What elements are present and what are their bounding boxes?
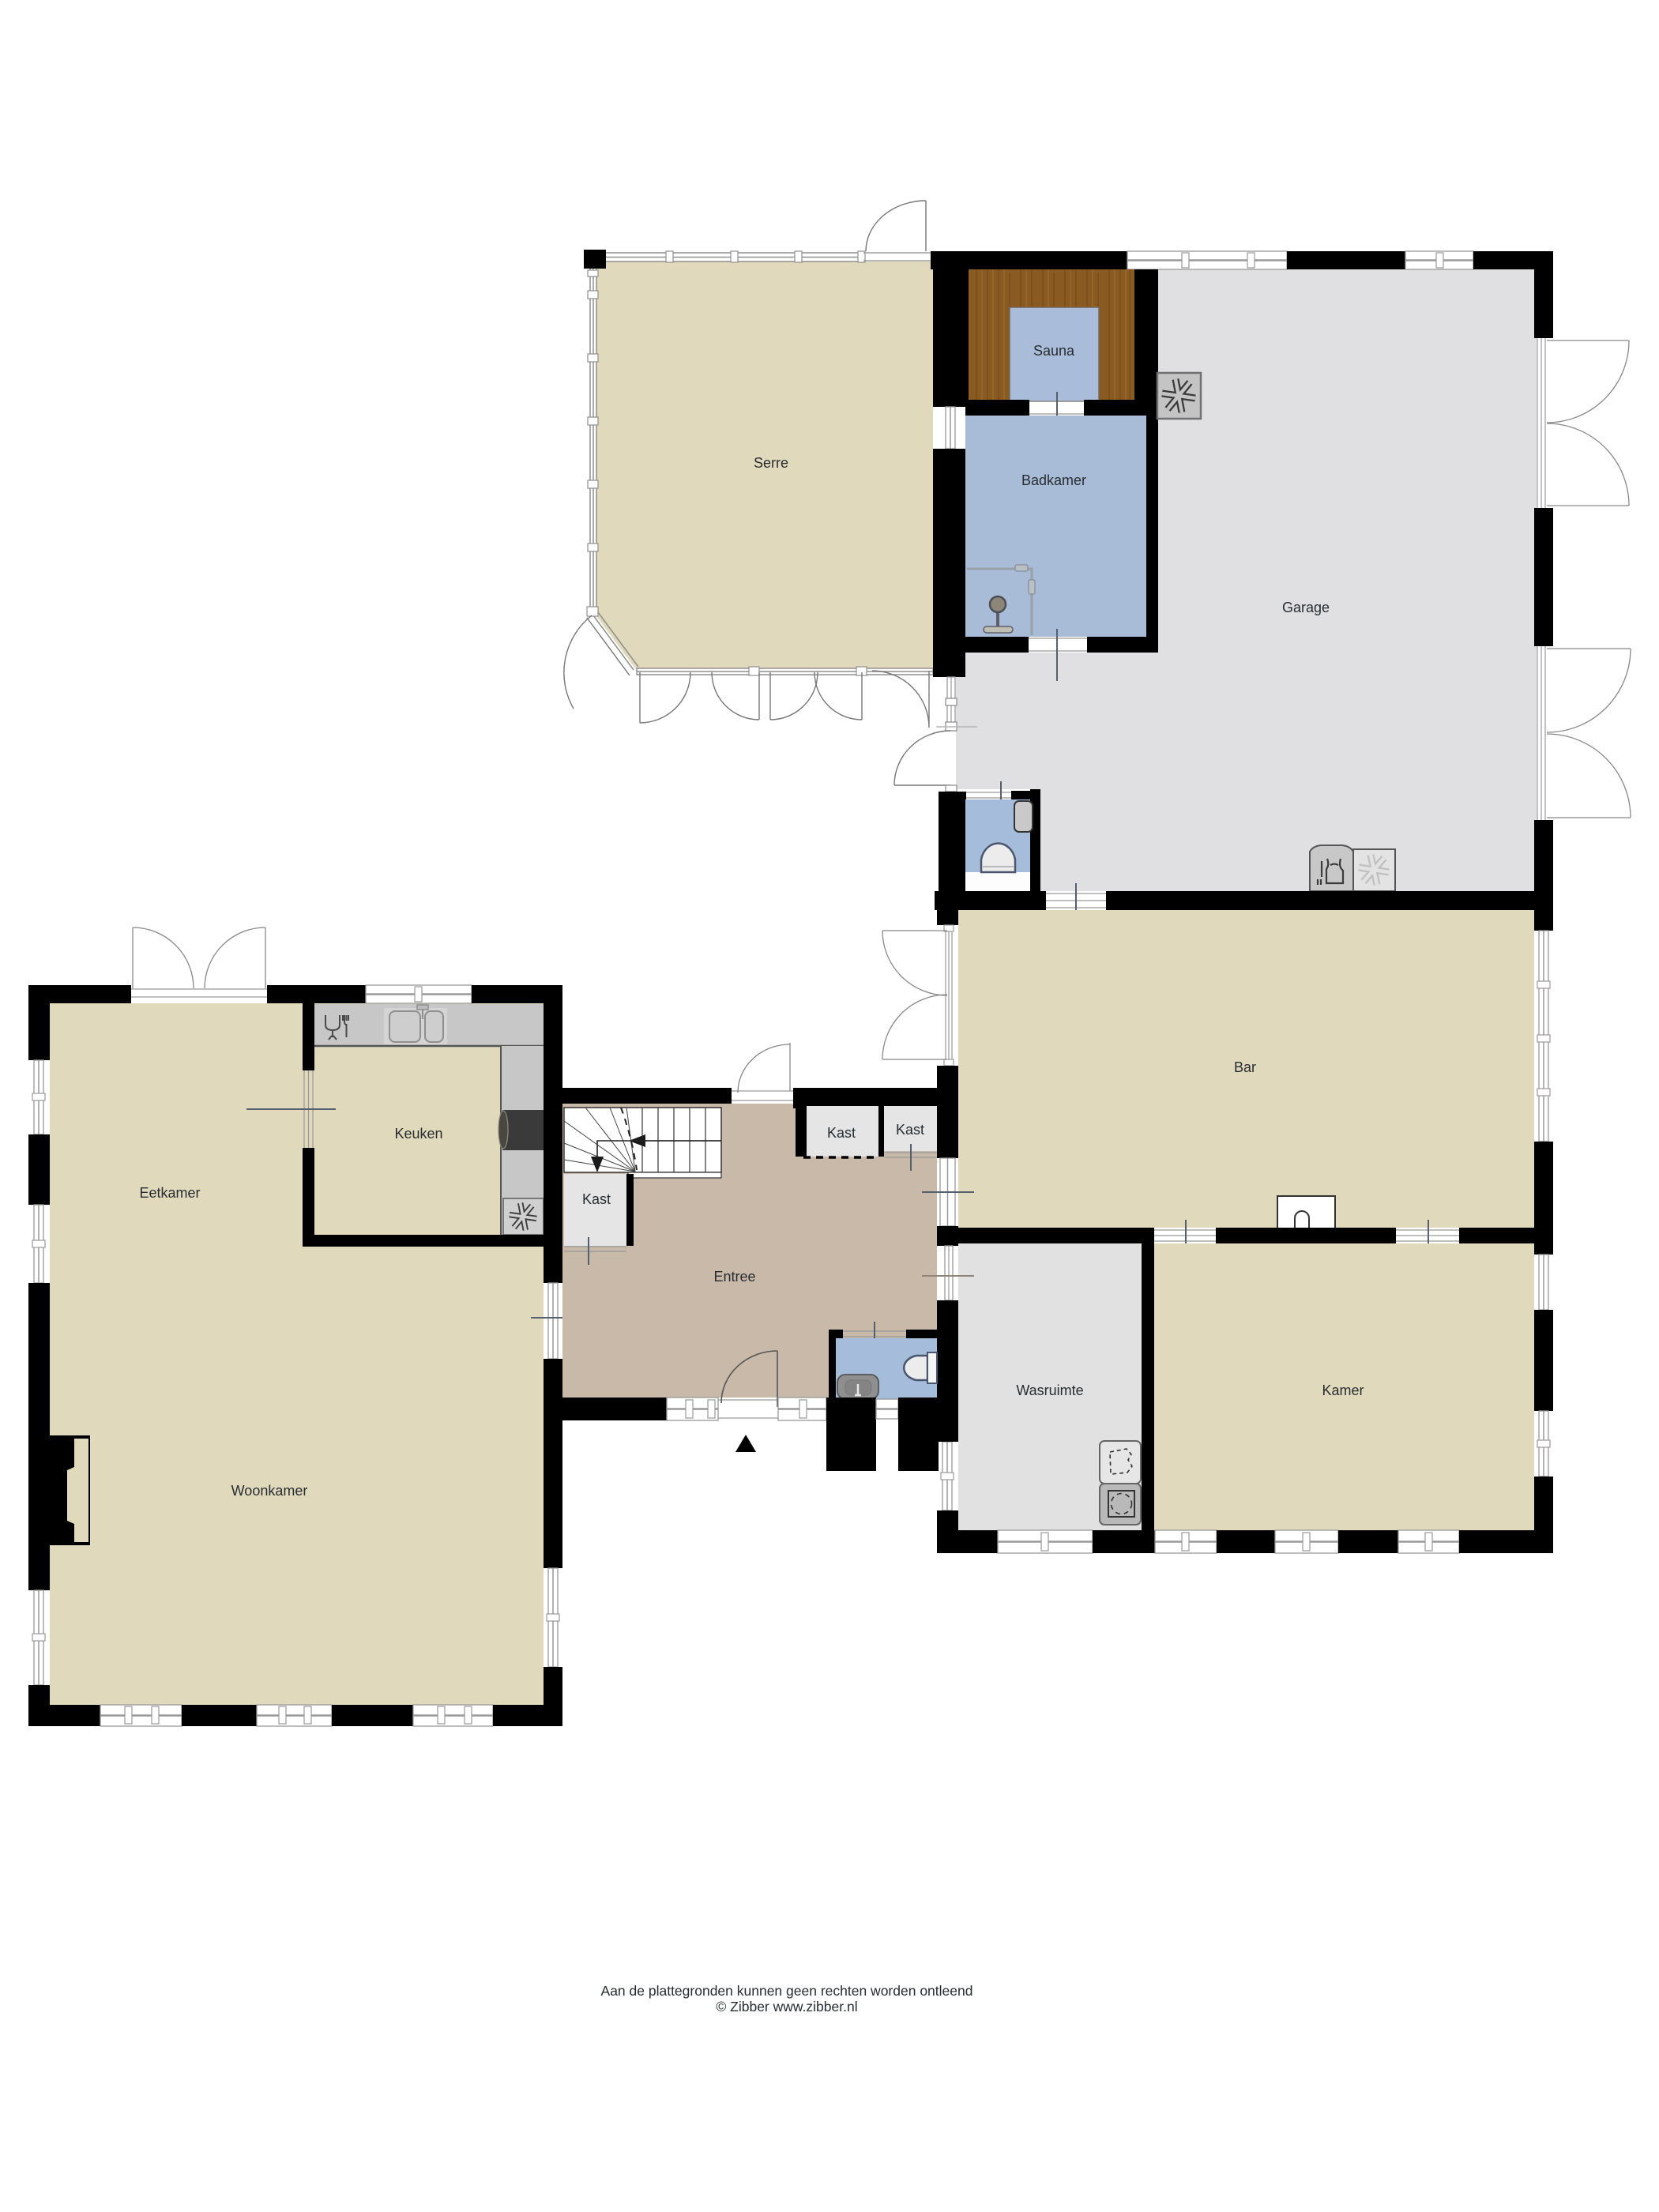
svg-text:© Zibber www.zibber.nl: © Zibber www.zibber.nl xyxy=(716,1999,857,2014)
svg-text:Kamer: Kamer xyxy=(1322,1382,1364,1398)
svg-text:Sauna: Sauna xyxy=(1033,343,1075,359)
svg-text:Wasruimte: Wasruimte xyxy=(1016,1382,1083,1398)
svg-text:Entree: Entree xyxy=(713,1269,755,1285)
svg-text:Eetkamer: Eetkamer xyxy=(139,1185,200,1201)
svg-text:Garage: Garage xyxy=(1282,600,1330,615)
svg-text:Woonkamer: Woonkamer xyxy=(231,1483,308,1499)
svg-text:Serre: Serre xyxy=(754,455,788,471)
svg-text:Keuken: Keuken xyxy=(394,1126,442,1142)
svg-text:Aan de plattegronden kunnen ge: Aan de plattegronden kunnen geen rechten… xyxy=(601,1983,973,1999)
svg-text:Kast: Kast xyxy=(582,1191,611,1207)
svg-text:Badkamer: Badkamer xyxy=(1021,472,1086,488)
svg-text:Bar: Bar xyxy=(1234,1059,1256,1075)
svg-text:Kast: Kast xyxy=(827,1125,856,1141)
svg-text:Kast: Kast xyxy=(896,1122,924,1138)
